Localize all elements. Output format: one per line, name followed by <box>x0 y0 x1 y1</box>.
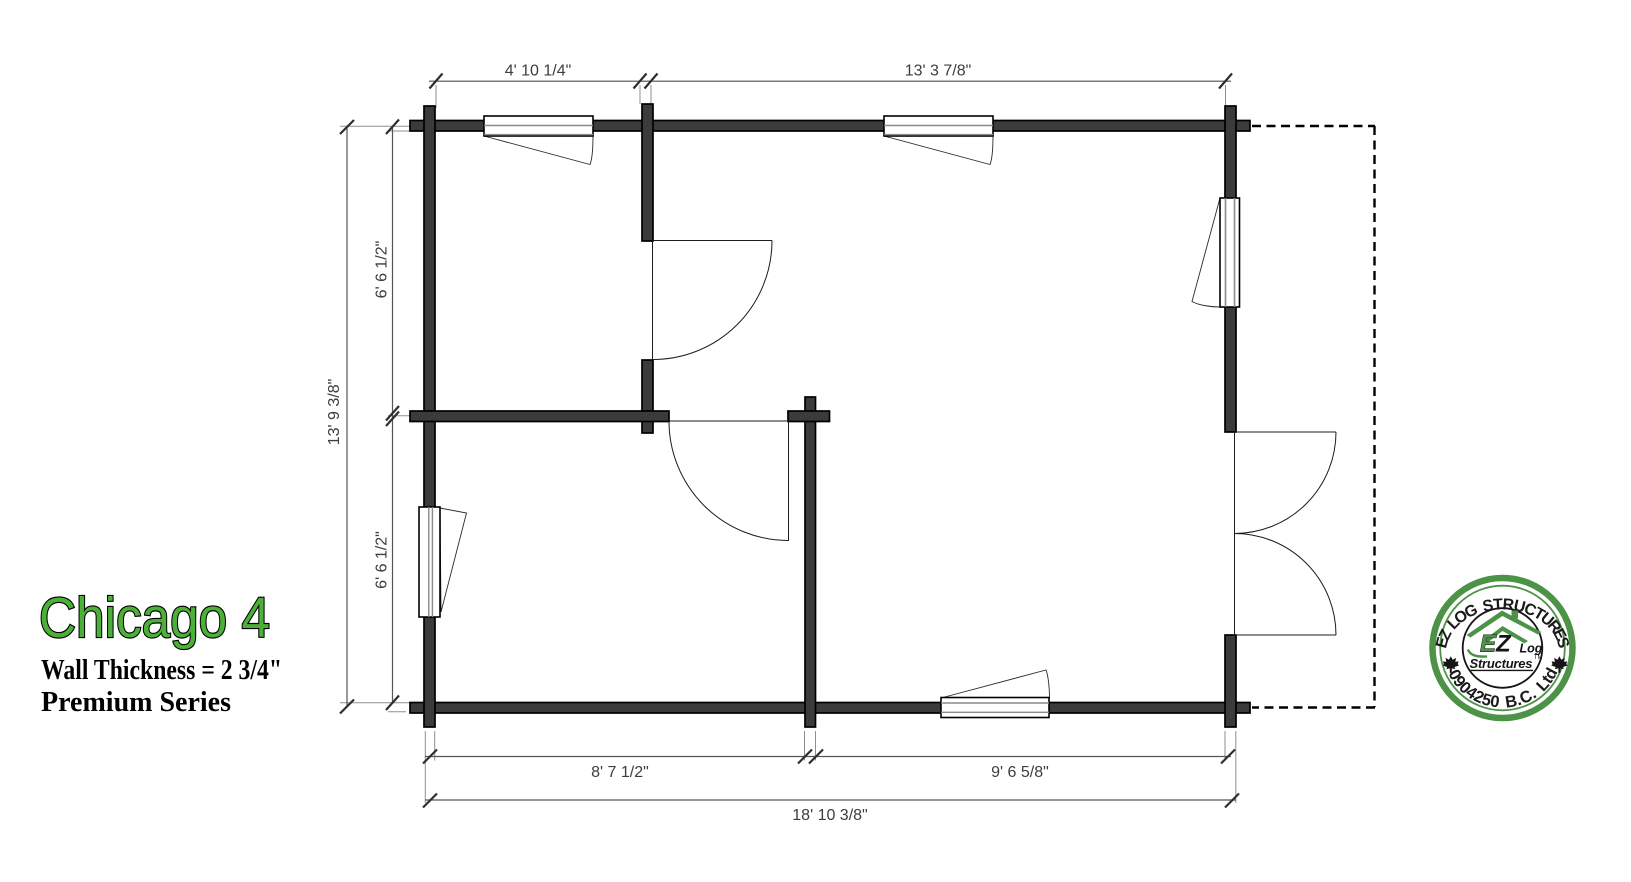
svg-text:8' 7 1/2": 8' 7 1/2" <box>591 764 649 781</box>
svg-text:Log: Log <box>1520 642 1543 656</box>
svg-text:9' 6 5/8": 9' 6 5/8" <box>991 764 1049 781</box>
svg-text:13' 9 3/8": 13' 9 3/8" <box>326 379 343 446</box>
svg-text:13' 3 7/8": 13' 3 7/8" <box>905 63 972 80</box>
svg-text:6' 6 1/2": 6' 6 1/2" <box>373 531 390 589</box>
svg-text:Wall Thickness = 2 3/4": Wall Thickness = 2 3/4" <box>41 655 282 686</box>
svg-text:Structures: Structures <box>1470 656 1533 671</box>
svg-text:Chicago 4: Chicago 4 <box>39 586 270 650</box>
svg-text:18' 10 3/8": 18' 10 3/8" <box>792 807 867 824</box>
svg-text:E: E <box>1480 631 1497 658</box>
svg-text:4' 10 1/4": 4' 10 1/4" <box>505 63 572 80</box>
svg-text:6' 6 1/2": 6' 6 1/2" <box>373 241 390 299</box>
svg-text:Premium Series: Premium Series <box>41 687 231 718</box>
svg-text:Z: Z <box>1495 631 1512 658</box>
svg-text:TM: TM <box>1534 655 1543 661</box>
